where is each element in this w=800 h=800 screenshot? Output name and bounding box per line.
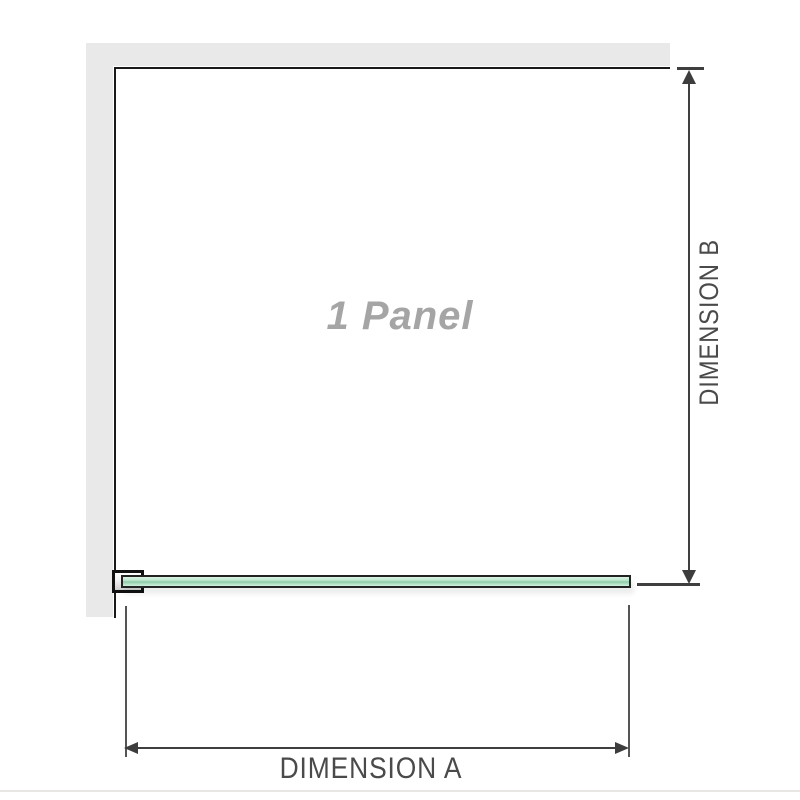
bottom-divider-line — [0, 790, 800, 792]
wall-left-strip — [86, 43, 113, 617]
arrow-right-icon — [615, 742, 629, 754]
arrow-left-icon — [124, 742, 138, 754]
panel-count-label: 1 Panel — [290, 294, 510, 338]
glass-panel-bar — [121, 575, 631, 588]
dimension-a-right-extension-line — [628, 605, 630, 757]
panel-left-edge-line — [114, 67, 116, 618]
dimension-a-line — [130, 747, 622, 749]
arrow-down-icon — [682, 570, 696, 584]
wall-top-strip — [86, 43, 670, 66]
arrow-up-icon — [682, 70, 696, 84]
diagram-canvas: 1 Panel DIMENSION B DIMENSION A — [0, 0, 800, 800]
dimension-b-line — [688, 80, 690, 574]
dimension-b-label: DIMENSION B — [696, 256, 722, 406]
dimension-a-label: DIMENSION A — [261, 752, 481, 786]
dimension-a-left-extension-line — [125, 606, 127, 757]
panel-top-edge-line — [114, 67, 670, 69]
